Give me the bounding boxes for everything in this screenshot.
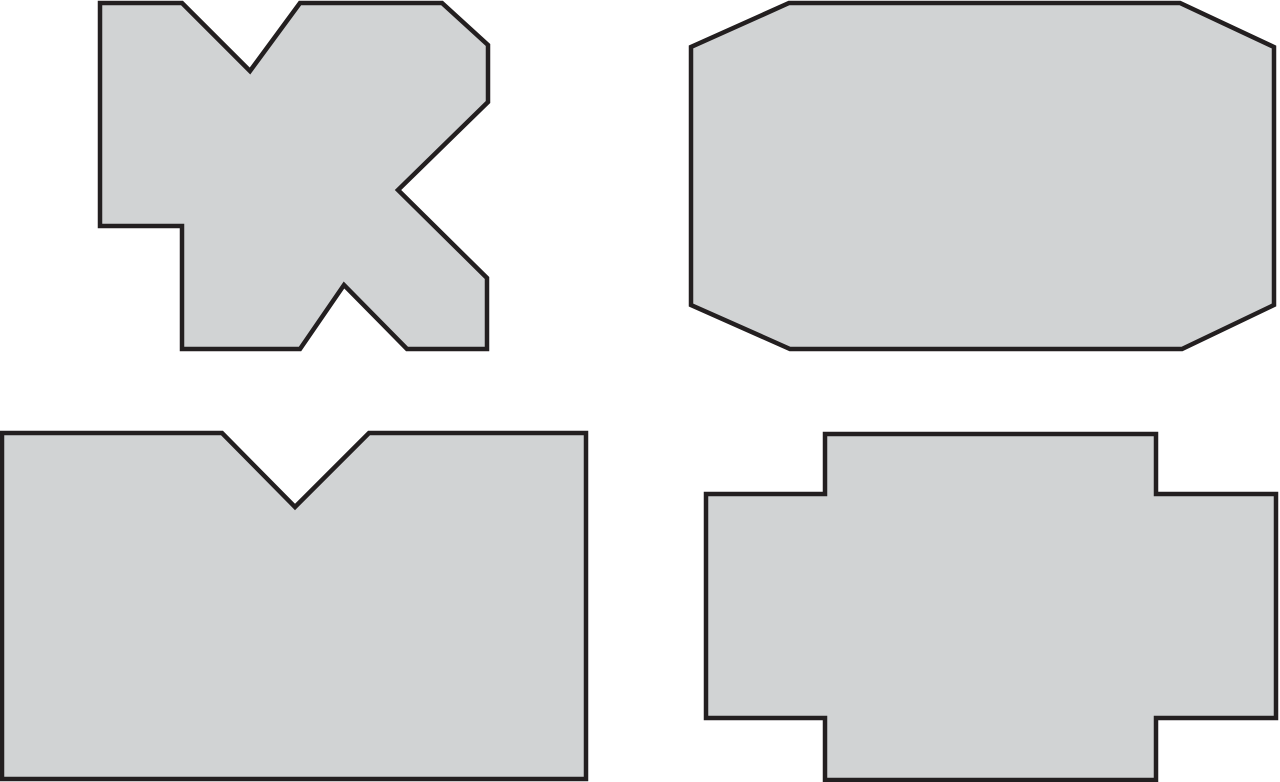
stepped-cross-block-shape (706, 434, 1276, 780)
chamfered-octagon-block-shape (691, 3, 1274, 349)
x-notched-block-shape (100, 3, 488, 349)
shapes-figure (0, 0, 1280, 782)
v-notched-block-shape (2, 433, 586, 779)
figure-canvas (0, 0, 1280, 782)
